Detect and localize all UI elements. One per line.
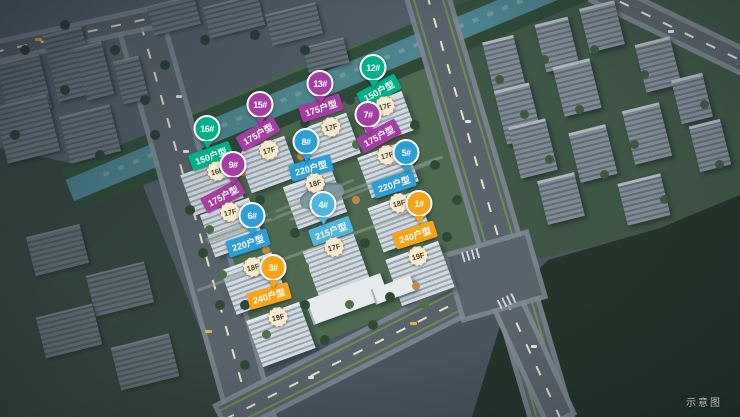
pin-pointer-icon [401, 165, 411, 173]
pin-circle: 15# [247, 91, 274, 118]
building-pin-9[interactable]: 9# [220, 151, 247, 185]
pin-pointer-icon [301, 154, 311, 162]
building-pin-1[interactable]: 1# [406, 190, 433, 224]
site-aerial-map: 150户型 175户型 175户型 150户型 175户型 175户型 220户… [0, 0, 740, 417]
building-pin-13[interactable]: 13# [307, 70, 334, 104]
building-pin-16[interactable]: 16# [194, 115, 221, 149]
pin-circle: 6# [239, 202, 266, 229]
pin-pointer-icon [368, 80, 378, 88]
city-building [147, 0, 201, 35]
pin-pointer-icon [414, 216, 424, 224]
building-pin-15[interactable]: 15# [247, 91, 274, 125]
pin-circle: 16# [194, 115, 221, 142]
building-pin-7[interactable]: 7# [355, 101, 382, 135]
pin-circle: 13# [307, 70, 334, 97]
pin-pointer-icon [202, 141, 212, 149]
city-building [203, 0, 265, 38]
building-pin-8[interactable]: 8# [293, 128, 320, 162]
pin-circle: 1# [406, 190, 433, 217]
pin-pointer-icon [255, 117, 265, 125]
vehicles-yellow [0, 0, 7, 3]
building-pin-5[interactable]: 5# [393, 139, 420, 173]
pin-circle: 8# [293, 128, 320, 155]
building-pin-12[interactable]: 12# [360, 54, 387, 88]
pin-circle: 4# [310, 191, 337, 218]
pin-circle: 3# [260, 254, 287, 281]
pin-circle: 12# [360, 54, 387, 81]
building-pin-4[interactable]: 4# [310, 191, 337, 225]
pin-pointer-icon [363, 127, 373, 135]
pin-pointer-icon [268, 280, 278, 288]
building-pin-6[interactable]: 6# [239, 202, 266, 236]
pin-pointer-icon [247, 228, 257, 236]
pin-circle: 9# [220, 151, 247, 178]
building-pin-3[interactable]: 3# [260, 254, 287, 288]
pin-circle: 7# [355, 101, 382, 128]
pin-pointer-icon [228, 177, 238, 185]
city-building [265, 2, 323, 46]
pin-pointer-icon [315, 96, 325, 104]
pin-pointer-icon [318, 217, 328, 225]
pin-circle: 5# [393, 139, 420, 166]
watermark: 示意图 [686, 394, 722, 409]
